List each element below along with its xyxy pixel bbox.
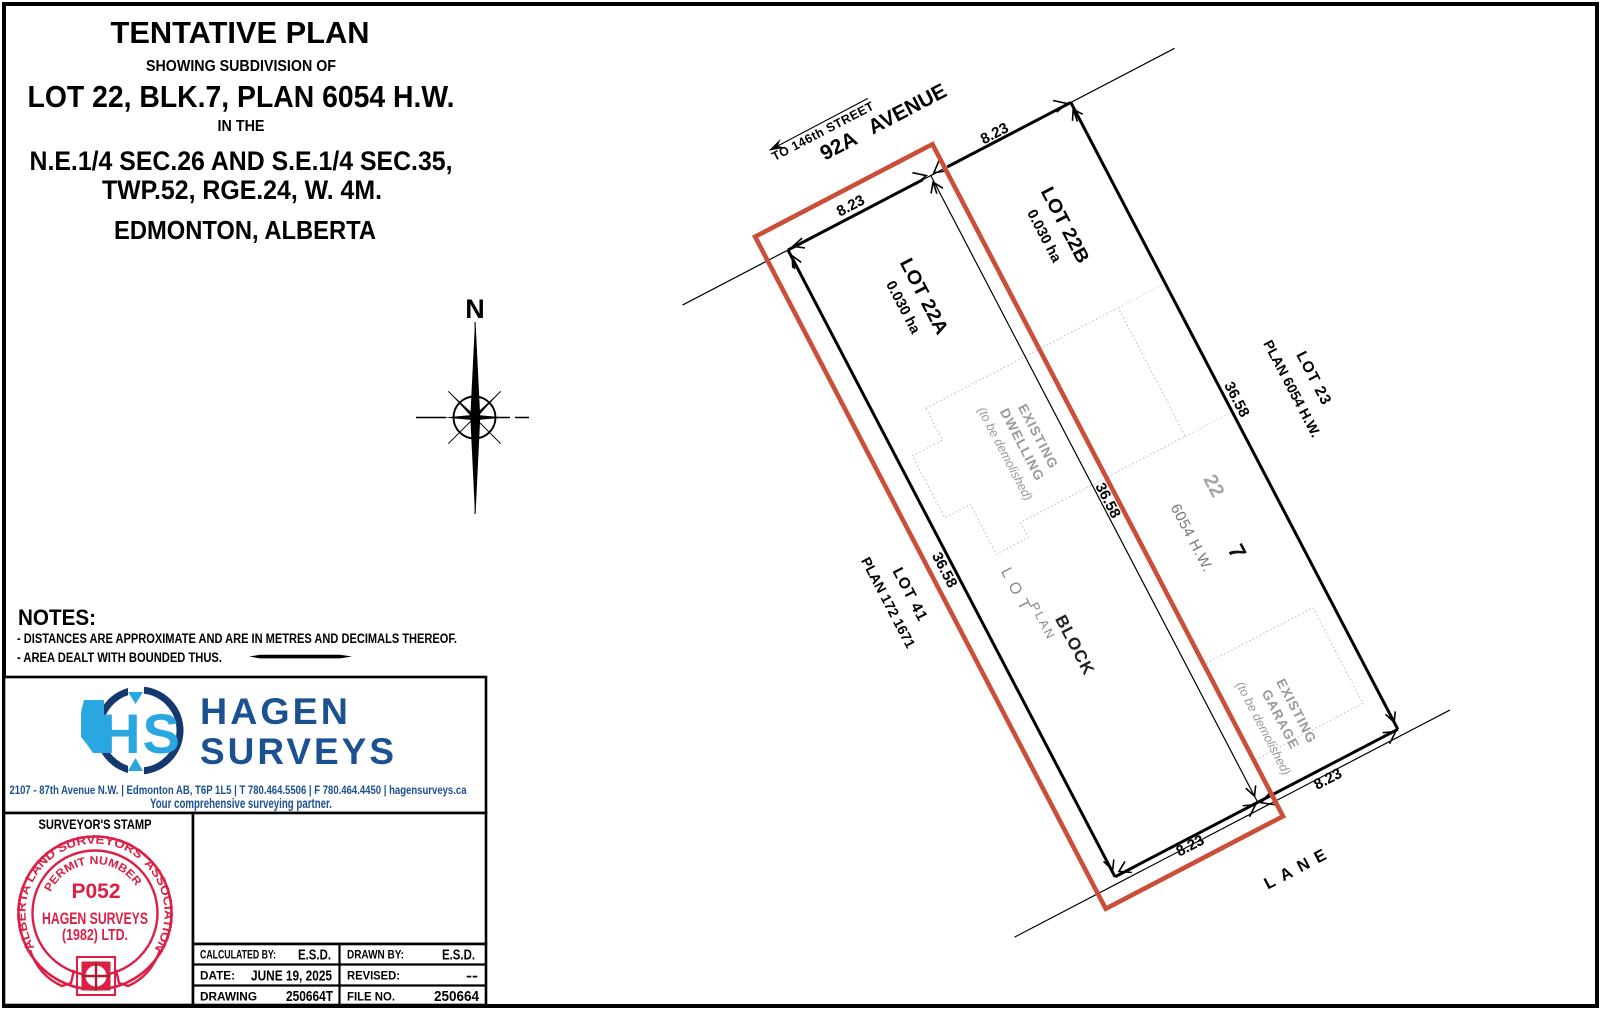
svg-text:CALCULATED BY:: CALCULATED BY: — [200, 949, 276, 962]
svg-text:E.S.D.: E.S.D. — [298, 948, 331, 964]
svg-text:- AREA DEALT WITH BOUNDED THUS: - AREA DEALT WITH BOUNDED THUS. — [17, 650, 222, 665]
svg-text:--: -- — [466, 969, 478, 985]
svg-text:HAGEN: HAGEN — [200, 691, 351, 732]
svg-text:SURVEYOR'S STAMP: SURVEYOR'S STAMP — [39, 817, 152, 832]
svg-text:N: N — [465, 294, 485, 324]
svg-text:NOTES:: NOTES: — [18, 605, 96, 630]
svg-text:P052: P052 — [71, 880, 120, 903]
svg-text:REVISED:: REVISED: — [347, 970, 400, 983]
svg-text:JUNE 19, 2025: JUNE 19, 2025 — [251, 969, 332, 985]
svg-text:N.E.1/4 SEC.26 AND S.E.1/4 SEC: N.E.1/4 SEC.26 AND S.E.1/4 SEC.35, — [30, 146, 453, 176]
svg-text:SHOWING SUBDIVISION OF: SHOWING SUBDIVISION OF — [146, 58, 336, 75]
svg-text:- DISTANCES ARE APPROXIMATE AN: - DISTANCES ARE APPROXIMATE AND ARE IN M… — [17, 631, 457, 646]
svg-text:DATE:: DATE: — [200, 970, 235, 983]
svg-text:HAGEN SURVEYS: HAGEN SURVEYS — [42, 910, 148, 928]
svg-text:TWP.52, RGE.24, W. 4M.: TWP.52, RGE.24, W. 4M. — [102, 175, 382, 205]
svg-text:SURVEYS: SURVEYS — [200, 731, 397, 772]
svg-text:E.S.D.: E.S.D. — [442, 948, 475, 964]
svg-text:HS: HS — [100, 702, 182, 765]
svg-text:EDMONTON, ALBERTA: EDMONTON, ALBERTA — [114, 215, 376, 245]
svg-text:2107 - 87th Avenue N.W. | Edmo: 2107 - 87th Avenue N.W. | Edmonton AB, T… — [10, 783, 467, 797]
svg-text:TENTATIVE PLAN: TENTATIVE PLAN — [111, 15, 370, 50]
svg-text:IN THE: IN THE — [218, 118, 265, 135]
svg-text:FILE NO.: FILE NO. — [347, 991, 395, 1004]
svg-text:LOT 22, BLK.7, PLAN 6054 H.W.: LOT 22, BLK.7, PLAN 6054 H.W. — [28, 79, 455, 114]
svg-text:250664: 250664 — [434, 988, 479, 1005]
svg-text:DRAWING: DRAWING — [200, 991, 257, 1004]
svg-text:(1982) LTD.: (1982) LTD. — [62, 927, 128, 944]
svg-text:Your comprehensive surveying p: Your comprehensive surveying partner. — [150, 796, 332, 811]
svg-text:250664T: 250664T — [286, 989, 333, 1005]
svg-text:DRAWN BY:: DRAWN BY: — [347, 949, 404, 962]
